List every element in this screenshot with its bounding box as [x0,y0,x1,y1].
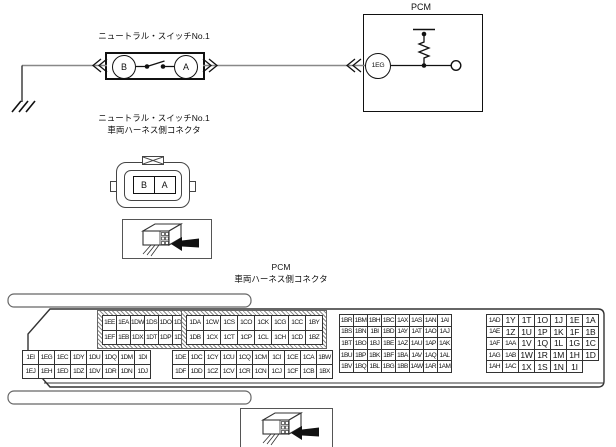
pin-1DY: 1DY [70,350,87,365]
ground-icon [12,66,35,113]
pin-block-right-a: 1BR1BM1BH1BC1AX1AS1AN1AI1BS1BN1BI1BD1AY1… [340,315,452,373]
pin-1BX: 1BX [316,364,333,379]
pin-1CL: 1CL [254,330,272,346]
pin-1CS: 1CS [220,315,238,331]
lock-tab-x-icon [143,157,163,164]
pin-1D: 1D [582,349,599,362]
pin-row: 1DF1DD1CZ1CV1CR1CN1CJ1CF1CB1BX [173,365,333,379]
circuit-lines [0,0,616,150]
pin-1EB: 1EB [116,330,131,346]
pin-row: 1DE1DC1CY1CU1CQ1CM1CI1CE1CA1BW [173,351,333,365]
pin-1X: 1X [518,360,535,373]
pin-block-frame-top-mid: 1DA1CW1CS1CO1CK1CG1CC1BY1DB1CX1CT1CP1CL1… [181,310,327,349]
wiring-diagram: ニュートラル・スイッチNo.1 PCM [0,0,616,447]
harness-view-frame [122,219,212,259]
pin-1DX: 1DX [130,330,145,346]
pin-1CP: 1CP [237,330,255,346]
connector-bottom-tab [8,391,251,404]
pin-1DM: 1DM [118,350,135,365]
pin-block-top-mid: 1DA1CW1CS1CO1CK1CG1CC1BY1DB1CX1CT1CP1CL1… [187,316,323,345]
pin-1EF: 1EF [102,330,117,346]
pin-row: 1EI1EG1EC1DY1DU1DQ1DM1DI [23,351,151,365]
pin-1CI: 1CI [268,350,285,365]
pin-1CZ: 1CZ [204,364,221,379]
pin-1CE: 1CE [284,350,301,365]
pin-1CQ: 1CQ [236,350,253,365]
switch-terminal-a: A [174,55,198,79]
connector-view-icon [123,220,211,258]
connector-view-icon [241,409,329,447]
pin-1DC: 1DC [188,350,205,365]
pin-1CC: 1CC [288,315,306,331]
pin-1DJ: 1DJ [134,364,151,379]
pin-1N: 1N [550,360,567,373]
pin-1BQ: 1BQ [353,360,368,373]
pin-1S: 1S [534,360,551,373]
pin-1CJ: 1CJ [268,364,285,379]
pin-1BW: 1BW [316,350,333,365]
pcm-terminal-circle [451,61,461,71]
pin-1CT: 1CT [220,330,238,346]
pin-1CK: 1CK [254,315,272,331]
pin-block-right-b: 1AD1Y1T1O1J1E1A1AE1Z1U1P1K1F1B1AF1AA1V1Q… [487,315,599,373]
pin-1DS: 1DS [144,315,159,331]
pin-1CN: 1CN [252,364,269,379]
pin-1EC: 1EC [54,350,71,365]
pin-1AH: 1AH [486,360,503,373]
pin-1CX: 1CX [203,330,221,346]
pin-1DW: 1DW [130,315,145,331]
pin-1AR: 1AR [423,360,438,373]
pin-1DZ: 1DZ [70,364,87,379]
switch-contact-icon [136,61,174,69]
pin-1BL: 1BL [367,360,382,373]
pin-1DN: 1DN [118,364,135,379]
pin-1CG: 1CG [271,315,289,331]
pin-1CF: 1CF [284,364,301,379]
pin-1DF: 1DF [172,364,189,379]
pin-row: 1DB1CX1CT1CP1CL1CH1CD1BZ [187,331,323,346]
pin-1CB: 1CB [300,364,317,379]
pin-1CW: 1CW [203,315,221,331]
pin-1DA: 1DA [186,315,204,331]
pin-row: 1BV1BQ1BL1BG1BB1AW1AR1AM [340,361,452,373]
pin-1DD: 1DD [188,364,205,379]
pin-1DO: 1DO [158,315,173,331]
pin-1DB: 1DB [186,330,204,346]
connector-top-tab [8,294,251,307]
pin-1DQ: 1DQ [102,350,119,365]
pin-1I: 1I [566,360,583,373]
pin-block-bottom-left: 1EI1EG1EC1DY1DU1DQ1DM1DI1EJ1EH1ED1DZ1DV1… [23,351,151,379]
pin-1DV: 1DV [86,364,103,379]
pin-row: 1AH1AC1X1S1N1I [487,361,599,373]
pin-1CY: 1CY [204,350,221,365]
pin-1EA: 1EA [116,315,131,331]
pin-1CV: 1CV [220,364,237,379]
pin-1BV: 1BV [339,360,354,373]
pin-1BB: 1BB [395,360,410,373]
pin-1BY: 1BY [305,315,323,331]
pcm-connector-label-line2: 車両ハーネス側コネクタ [234,274,327,285]
pin-1CU: 1CU [220,350,237,365]
pin-1CM: 1CM [252,350,269,365]
pcm-connector-label-line1: PCM [272,262,291,273]
cavity-b: B [133,176,155,194]
pin-1CH: 1CH [271,330,289,346]
pin-1BZ: 1BZ [305,330,323,346]
pin-1CO: 1CO [237,315,255,331]
pin-1EJ: 1EJ [22,364,39,379]
pin-1DE: 1DE [172,350,189,365]
pin-1EE: 1EE [102,315,117,331]
connector-lock-tab [142,156,164,165]
pin-1EG: 1EG [38,350,55,365]
pin-1EI: 1EI [22,350,39,365]
pin-row: 1EJ1EH1ED1DZ1DV1DR1DN1DJ [23,365,151,379]
pin-1BG: 1BG [381,360,396,373]
pin-block-bottom-mid: 1DE1DC1CY1CU1CQ1CM1CI1CE1CA1BW1DF1DD1CZ1… [173,351,333,379]
pin-1DP: 1DP [158,330,173,346]
switch-terminal-b: B [112,55,136,79]
pin-1AW: 1AW [409,360,424,373]
pin-1DU: 1DU [86,350,103,365]
pin-row: 1DA1CW1CS1CO1CK1CG1CC1BY [187,316,323,331]
pin-1AM: 1AM [437,360,452,373]
pcm-pin-1eg-circle: 1EG [365,53,391,79]
harness-view-frame-bottom [240,408,333,447]
pin-1EH: 1EH [38,364,55,379]
connector-cavity-row: B A [133,176,176,194]
cavity-a: A [154,176,176,194]
pin-1CA: 1CA [300,350,317,365]
pin-1CD: 1CD [288,330,306,346]
pin-1ED: 1ED [54,364,71,379]
resistor-icon [391,30,461,71]
pin-1CR: 1CR [236,364,253,379]
pin-1DI: 1DI [134,350,151,365]
pin-1DR: 1DR [102,364,119,379]
pin-1AC: 1AC [502,360,519,373]
pin-1DT: 1DT [144,330,159,346]
